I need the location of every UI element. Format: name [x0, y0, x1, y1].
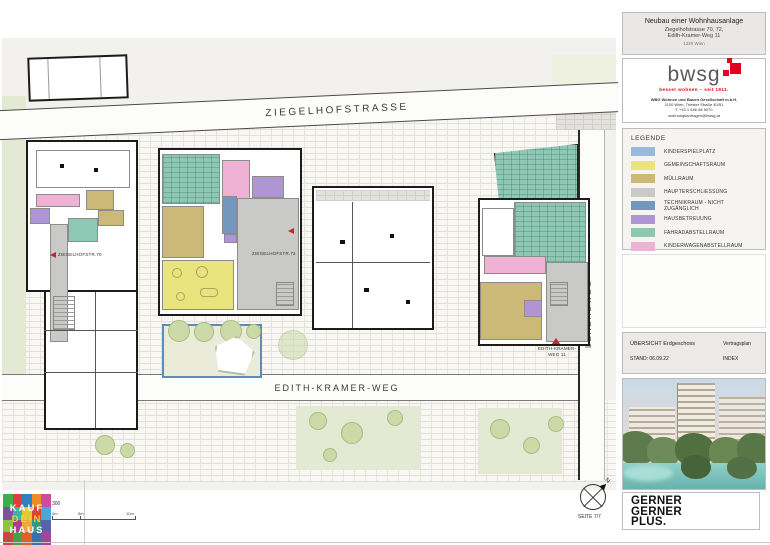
project-name: Neubau einer Wohnhausanlage	[623, 13, 765, 25]
furniture	[176, 292, 185, 301]
room-kinderwagen	[484, 256, 546, 274]
furniture-table	[200, 288, 218, 297]
tree	[323, 448, 337, 462]
room-muell	[162, 206, 204, 258]
bwsg-logo-mark	[723, 61, 743, 81]
tree	[120, 443, 135, 458]
render-tree	[681, 455, 711, 479]
stairs	[550, 282, 568, 306]
furniture	[172, 268, 182, 278]
entrance-marker	[552, 338, 560, 344]
door-mark	[390, 234, 394, 238]
legend-swatch	[631, 188, 655, 197]
stairs	[53, 296, 75, 330]
bwsg-logo: bwsg	[667, 63, 720, 86]
room-muell	[98, 210, 124, 226]
label-edith-kramer-weg-11: EDITH-KRAMER- WEG 11	[526, 346, 588, 357]
kdh-line-2: DEIN	[12, 514, 43, 525]
room-technik	[222, 196, 237, 234]
plan-sheet: { "sheet": { "project_line1": "Neubau ei…	[0, 0, 770, 545]
street-label-ziegelhofstrasse: ZIEGELHOFSTRASSE	[232, 100, 442, 121]
page-number: SEITE 7/7	[578, 514, 601, 520]
tree	[490, 419, 510, 439]
plan-type: Vertragsplan	[723, 341, 751, 347]
inner-wall	[95, 292, 96, 428]
room-hausbetreuung	[524, 300, 542, 317]
legend-swatch	[631, 147, 655, 156]
legend-block: LEGENDE KINDERSPIELPLATZ GEMEINSCHAFTSRA…	[622, 128, 766, 250]
legend-swatch	[631, 242, 655, 251]
legend-item-gemeinschaftsraum: GEMEINSCHAFTSRAUM	[631, 159, 757, 173]
empty-block	[622, 254, 766, 328]
legend-swatch	[631, 161, 655, 170]
title-panel: Neubau einer Wohnhausanlage Ziegelhofstr…	[618, 0, 770, 545]
plan-info-block: ÜBERSICHT Erdgeschoss STAND: 06.09.22 Ve…	[622, 332, 766, 374]
tree	[168, 320, 190, 342]
legend-swatch	[631, 201, 655, 210]
room-fahrrad	[162, 154, 220, 204]
tree	[548, 416, 564, 432]
legend-swatch	[631, 215, 655, 224]
room-kinderwagen	[36, 194, 80, 207]
inner-wall	[44, 372, 138, 373]
scale-ratio: 300	[52, 501, 60, 507]
building-center	[312, 186, 434, 330]
client-email: wohnungsanfragen@bwsg.at	[623, 113, 765, 118]
project-address-1: Ziegelhofstrasse 70, 72,	[623, 25, 765, 33]
legend-title: LEGENDE	[631, 135, 757, 142]
room-muell	[86, 190, 114, 210]
tree	[341, 422, 363, 444]
legend-item-kinderspielplatz: KINDERSPIELPLATZ	[631, 145, 757, 159]
kaufdeinhaus-logo: KAUF DEIN HAUS	[3, 494, 51, 545]
plan-stand: STAND: 06.09.22	[630, 356, 695, 362]
room-fahrrad	[68, 218, 98, 242]
legend-item-technikraum: TECHNIKRAUM - NICHT ZUGÄNGLICH	[631, 199, 757, 213]
door-mark	[364, 288, 369, 292]
project-city: 1220 Wien	[623, 39, 765, 46]
furniture	[196, 266, 208, 278]
render-tree	[727, 457, 757, 479]
stairs	[276, 282, 294, 306]
door-mark	[60, 164, 64, 168]
architect-line-1: GERNER	[631, 496, 751, 507]
architect-line-3: PLUS.	[631, 517, 751, 528]
roof-strip	[316, 190, 430, 201]
tree	[387, 410, 403, 426]
room-hall	[36, 150, 130, 188]
architect-block: GERNER GERNER PLUS.	[622, 492, 760, 530]
legend-item-hausbetreuung: HAUSBETREUUNG	[631, 213, 757, 227]
room-hausbetreuung	[30, 208, 50, 224]
client-block: bwsg besser wohnen – seit 1911. WBG Wohn…	[622, 58, 766, 123]
door-mark	[94, 168, 98, 172]
label-ziegelhofstr-70: ZIEGELHOFSTR.70	[58, 252, 102, 257]
legend-item-fahradabstellraum: FAHRADABSTELLRAUM	[631, 226, 757, 240]
green-strip-northeast	[552, 55, 616, 85]
kdh-line-1: KAUF	[10, 503, 44, 514]
project-rendering	[622, 378, 766, 490]
tree	[246, 324, 261, 339]
tree	[278, 330, 308, 360]
entrance-marker	[288, 228, 294, 234]
kdh-line-3: HAUS	[10, 525, 45, 536]
site-plan: ZIEGELHOFSTRASSE LEHERBWEG EDITH-KRAMER-…	[0, 0, 618, 545]
legend-swatch	[631, 174, 655, 183]
label-ziegelhofstr-72: ZIEGELHOFSTR.72	[252, 251, 296, 256]
scale-bar: 0m 5m 10m	[52, 511, 136, 521]
entrance-marker	[50, 252, 56, 258]
bwsg-tagline: besser wohnen – seit 1911.	[623, 87, 765, 92]
inner-wall	[316, 262, 430, 263]
project-title-block: Neubau einer Wohnhausanlage Ziegelhofstr…	[622, 12, 766, 55]
tree	[194, 322, 214, 342]
door-mark	[406, 300, 410, 304]
legend-item-muellraum: MÜLLRAUM	[631, 172, 757, 186]
plan-index: INDEX	[723, 356, 751, 362]
render-water-highlight	[623, 465, 673, 481]
room-hausbetreuung-small	[224, 234, 237, 243]
street-label-edith-kramer-weg: EDITH-KRAMER-WEG	[227, 383, 447, 393]
room-hausbetreuung	[252, 176, 284, 198]
inner-wall	[352, 202, 353, 328]
tree	[95, 435, 115, 455]
room-white	[482, 208, 514, 256]
legend-swatch	[631, 228, 655, 237]
tree	[523, 437, 540, 454]
legend-item-kinderwagenabstellraum: KINDERWAGENABSTELLRAUM	[631, 240, 757, 254]
door-mark	[340, 240, 345, 244]
building-north	[27, 54, 128, 101]
inner-wall	[44, 330, 138, 331]
sheet-bottom-rule	[0, 542, 770, 543]
plan-name: ÜBERSICHT Erdgeschoss	[630, 341, 695, 347]
tree	[309, 412, 327, 430]
legend-item-haupterschliessung: HAUPTERSCHLIESSUNG	[631, 186, 757, 200]
